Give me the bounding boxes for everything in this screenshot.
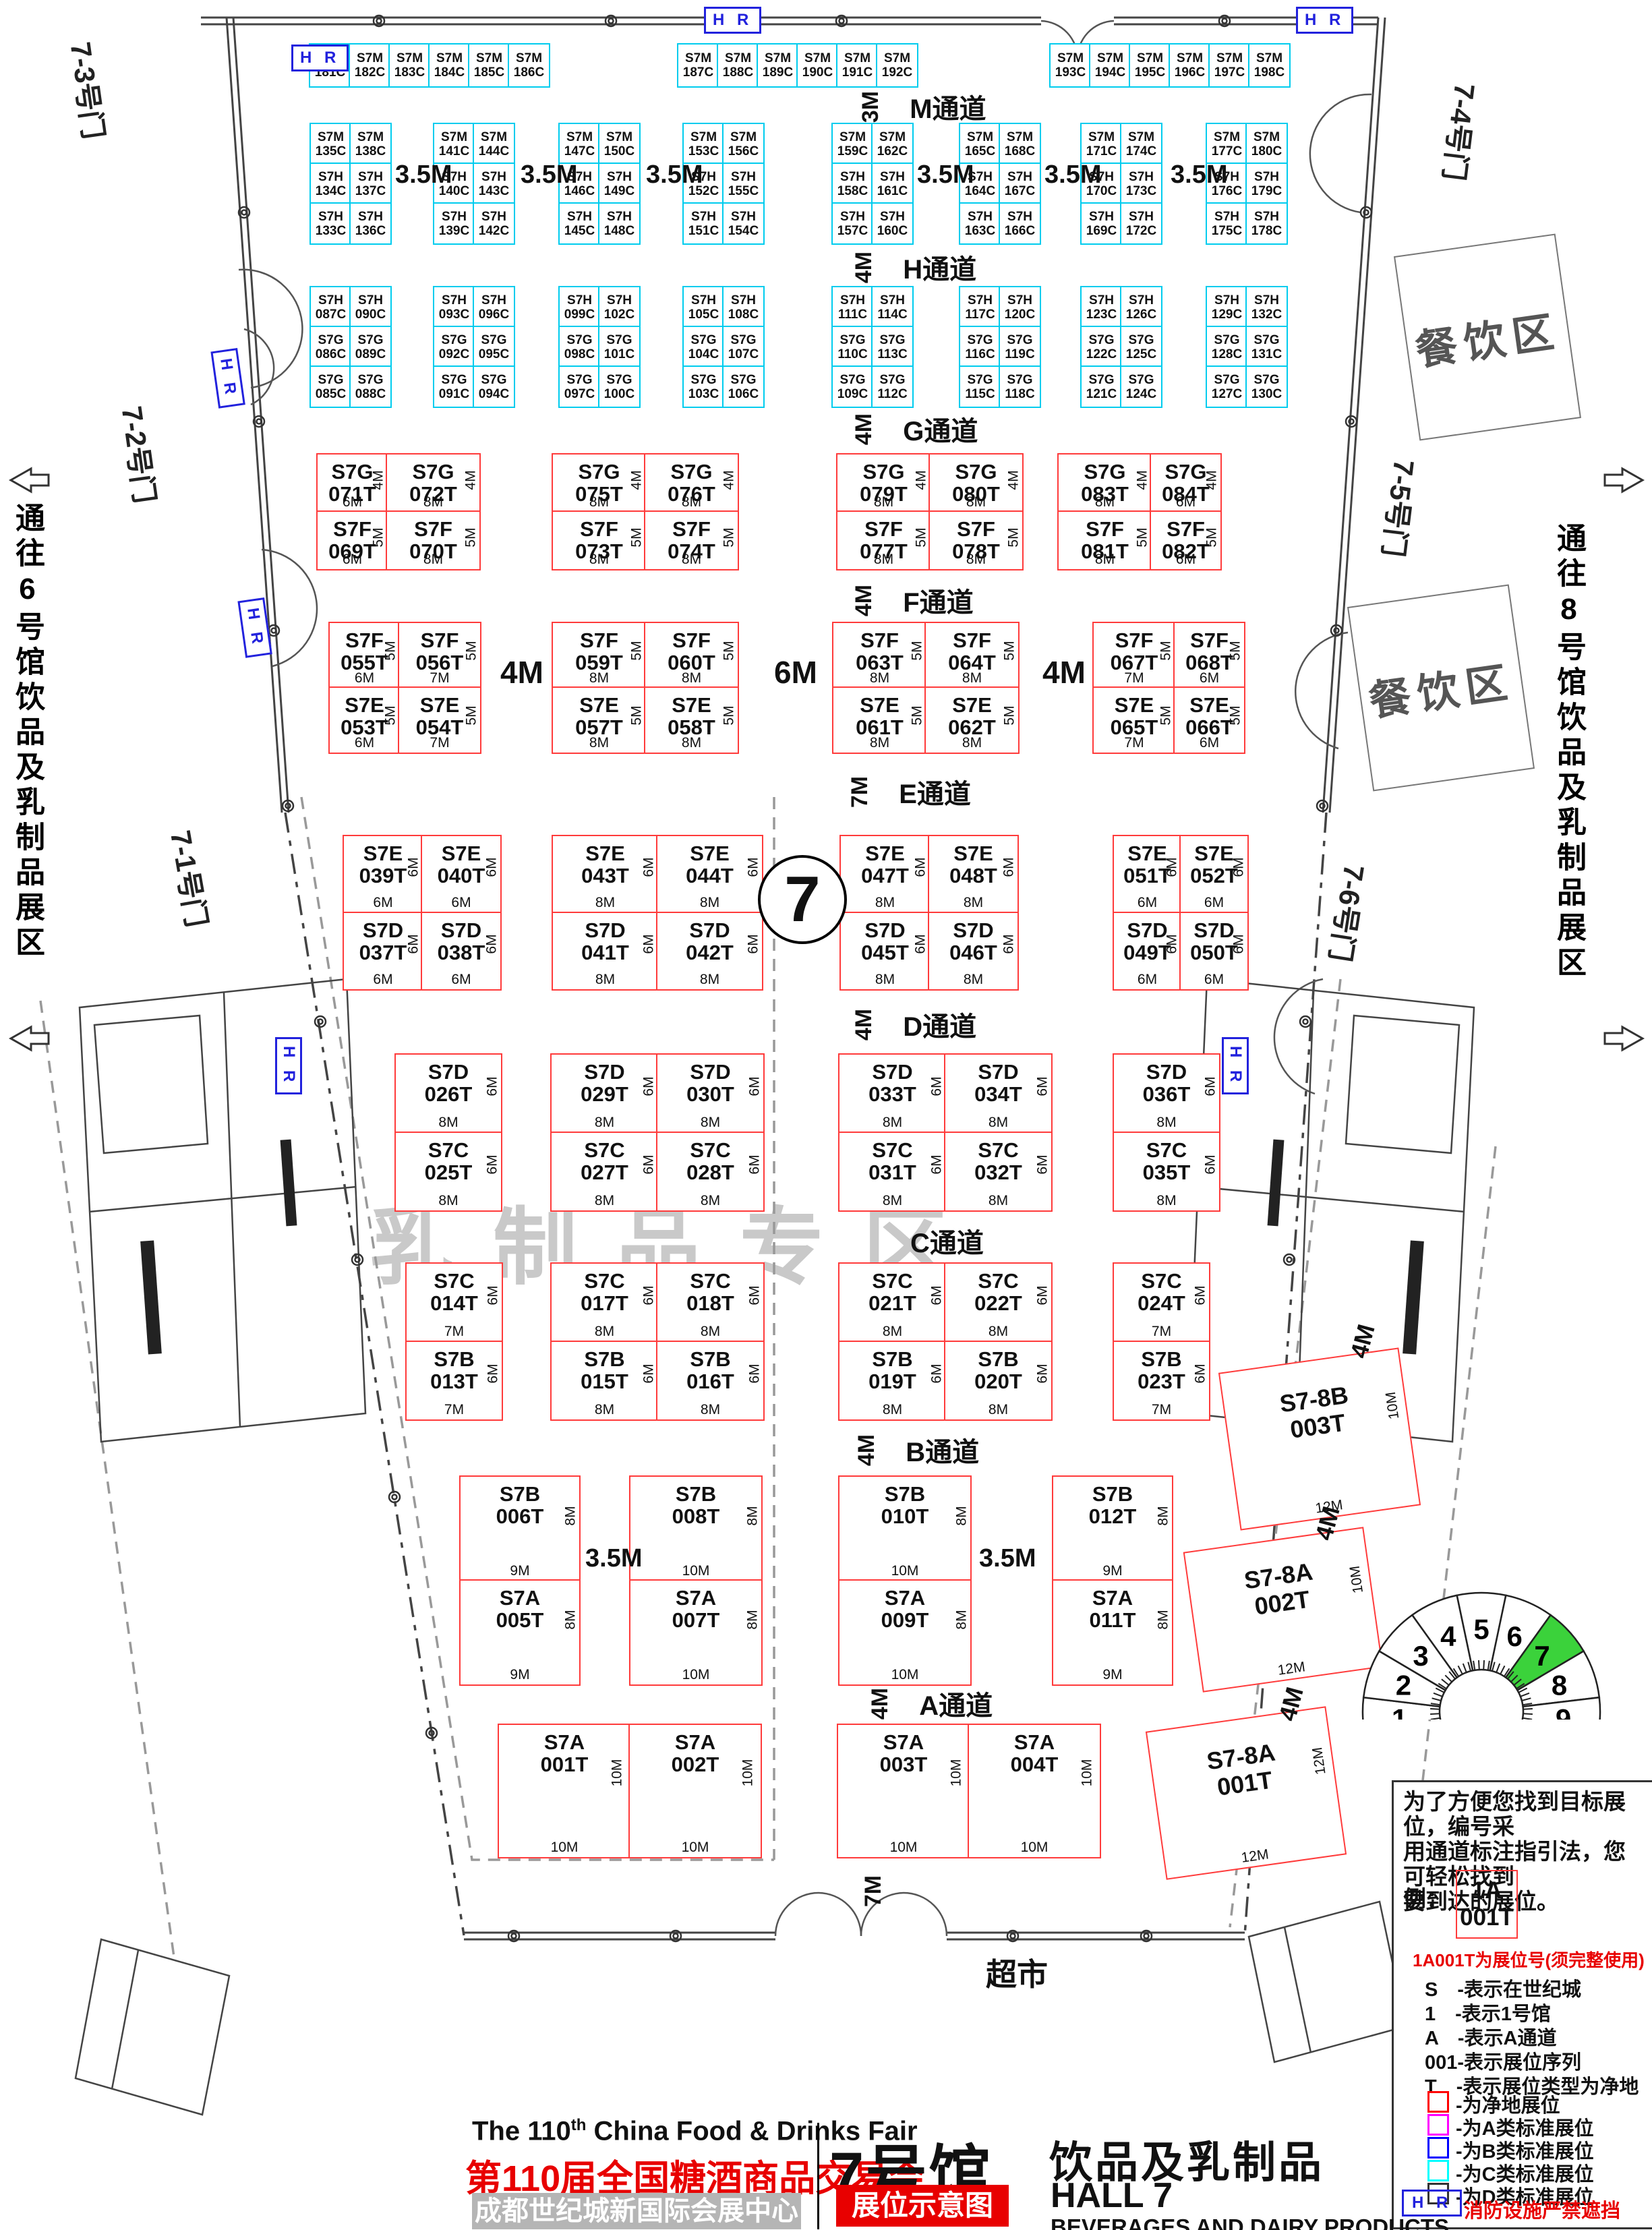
legend-type-swatch bbox=[1427, 2137, 1449, 2159]
booth: S7M153C bbox=[682, 123, 725, 165]
aisle-label: 4MH通道 bbox=[848, 251, 976, 283]
booth: S7M168C bbox=[999, 123, 1041, 165]
booth: S7H167C bbox=[999, 163, 1041, 205]
supermarket-label: 超市 bbox=[986, 1950, 1048, 1995]
booth: S7C024T 6M7M bbox=[1113, 1262, 1210, 1343]
legend-fire-note: 消防设施严禁遮挡 bbox=[1464, 2195, 1620, 2223]
hall-products-en: BEVERAGES AND DAIRY PRODUCTS bbox=[1051, 2214, 1449, 2230]
booth: S7H151C bbox=[682, 202, 725, 245]
booth: S7H163C bbox=[959, 202, 1001, 245]
booth: S7G121C bbox=[1080, 365, 1123, 408]
booth: S7H099C bbox=[558, 286, 601, 328]
booth: S7M192C bbox=[876, 43, 918, 88]
booth: S7M189C bbox=[757, 43, 799, 88]
fire-hydrant-box: H R bbox=[275, 1037, 302, 1094]
booth: S7D033T 6M8M bbox=[838, 1053, 947, 1134]
booth: S7C031T 6M8M bbox=[838, 1132, 947, 1212]
booth: S7H160C bbox=[871, 202, 914, 245]
booth: S7E061T 5M8M bbox=[832, 686, 927, 754]
booth: S7M190C bbox=[796, 43, 839, 88]
booth: S7F056T 5M7M bbox=[398, 622, 481, 689]
aisle-label: 4MD通道 bbox=[848, 1008, 976, 1040]
booth: S7G127C bbox=[1206, 365, 1248, 408]
booth: S7G101C bbox=[598, 326, 641, 368]
booth: S7E065T 5M7M bbox=[1092, 686, 1176, 754]
booth: S7M156C bbox=[722, 123, 765, 165]
booth: S7E051T 6M6M bbox=[1113, 835, 1182, 914]
booth: S7E043T 6M8M bbox=[552, 835, 659, 914]
booth: S7D026T 6M8M bbox=[394, 1053, 502, 1134]
booth: S7H173C bbox=[1120, 163, 1162, 205]
title-divider bbox=[817, 2123, 819, 2229]
booth: S7H142C bbox=[473, 202, 515, 245]
booth: S7A001T 10M10M bbox=[498, 1724, 631, 1858]
gap-dim-label: 3.5M bbox=[1171, 160, 1227, 189]
booth: S7G091C bbox=[433, 365, 475, 408]
booth: S7M138C bbox=[349, 123, 392, 165]
fan-hall-number: 1 bbox=[1392, 1703, 1407, 1720]
booth: S7E047T 6M8M bbox=[839, 835, 931, 914]
booth: S7D042T 6M8M bbox=[656, 912, 763, 991]
booth: S7G095C bbox=[473, 326, 515, 368]
booth: S7G122C bbox=[1080, 326, 1123, 368]
booth: S7H139C bbox=[433, 202, 475, 245]
booth: S7G088C bbox=[349, 365, 392, 408]
venue-bar: 成都世纪城新国际会展中心 bbox=[472, 2193, 801, 2229]
booth: S7G071T 4M6M bbox=[316, 453, 388, 513]
booth: S7M198C bbox=[1248, 43, 1291, 88]
booth: S7G076T 4M8M bbox=[644, 453, 739, 513]
booth: S7G112C bbox=[871, 365, 914, 408]
booth: S7H102C bbox=[598, 286, 641, 328]
aisle-label: 3MM通道 bbox=[855, 90, 986, 123]
booth: S7E039T 6M6M bbox=[343, 835, 423, 914]
booth: S7C032T 6M8M bbox=[944, 1132, 1053, 1212]
booth: S7H129C bbox=[1206, 286, 1248, 328]
booth: S7G086C bbox=[309, 326, 352, 368]
booth: S7M141C bbox=[433, 123, 475, 165]
corridor-text-right: 通往8号馆饮品及乳制品展区 bbox=[1547, 523, 1590, 982]
fan-hall-number: 3 bbox=[1413, 1640, 1428, 1672]
fan-hall-number: 6 bbox=[1507, 1620, 1523, 1652]
booth: S7H149C bbox=[598, 163, 641, 205]
map-type-badge: 展位示意图 bbox=[836, 2185, 1009, 2227]
booth: S7E048T 6M8M bbox=[928, 835, 1019, 914]
booth: S7D049T 6M6M bbox=[1113, 912, 1182, 991]
booth: S7M184C bbox=[428, 43, 471, 88]
gap-dim-label: 3.5M bbox=[395, 160, 452, 189]
booth: S7C028T 6M8M bbox=[656, 1132, 765, 1212]
booth: S7M186C bbox=[508, 43, 550, 88]
booth: S7E053T 5M6M bbox=[328, 686, 401, 754]
booth: S7E057T 5M8M bbox=[552, 686, 647, 754]
booth: S7D030T 6M8M bbox=[656, 1053, 765, 1134]
gap-dim-label: 6M bbox=[774, 654, 817, 691]
booth: S7G106C bbox=[722, 365, 765, 408]
dining-area: 餐饮区 bbox=[1347, 585, 1535, 792]
legend-example-booth: 1A 001T bbox=[1456, 1870, 1518, 1939]
booth: S7G089C bbox=[349, 326, 392, 368]
booth: S7G110C bbox=[831, 326, 874, 368]
fire-hydrant-box: H R bbox=[291, 45, 349, 71]
booth: S7H123C bbox=[1080, 286, 1123, 328]
aisle-label: 4MB通道 bbox=[851, 1434, 979, 1466]
booth: S7M182C bbox=[349, 43, 391, 88]
booth: S7D050T 6M6M bbox=[1179, 912, 1249, 991]
legend-type-swatch bbox=[1427, 2091, 1449, 2113]
booth: S7D045T 6M8M bbox=[839, 912, 931, 991]
booth: S7E058T 5M8M bbox=[644, 686, 739, 754]
booth: S7E062T 5M8M bbox=[924, 686, 1020, 754]
booth: S7A007T 8M10M bbox=[629, 1579, 763, 1686]
booth: S7C022T 6M8M bbox=[944, 1262, 1053, 1343]
booth: S7B016T 6M8M bbox=[656, 1341, 765, 1421]
booth: S7A002T 10M10M bbox=[628, 1724, 762, 1858]
booth: S7D038T 6M6M bbox=[421, 912, 502, 991]
gap-dim-label: 3.5M bbox=[1044, 160, 1101, 189]
booth: S7M165C bbox=[959, 123, 1001, 165]
aisle-label: C通道 bbox=[910, 1225, 984, 1257]
booth: S7G119C bbox=[999, 326, 1041, 368]
gap-dim-label: 3.5M bbox=[521, 160, 577, 189]
booth: S7A003T 10M10M bbox=[837, 1724, 970, 1858]
gap-dim-label: 3.5M bbox=[979, 1544, 1036, 1573]
fan-hall-number: 7 bbox=[1534, 1640, 1550, 1672]
booth: S7E054T 5M7M bbox=[398, 686, 481, 754]
fire-hydrant-box: H R bbox=[704, 7, 761, 34]
booth: S7D041T 6M8M bbox=[552, 912, 659, 991]
booth: S7G107C bbox=[722, 326, 765, 368]
booth: S7H161C bbox=[871, 163, 914, 205]
booth: S7H158C bbox=[831, 163, 874, 205]
booth: S7F063T 5M8M bbox=[832, 622, 927, 689]
booth: S7H136C bbox=[349, 202, 392, 245]
booth: S7M196C bbox=[1169, 43, 1211, 88]
booth: S7C018T 6M8M bbox=[656, 1262, 765, 1343]
booth: S7D046T 6M8M bbox=[928, 912, 1019, 991]
booth: S7F059T 5M8M bbox=[552, 622, 647, 689]
booth: S7H154C bbox=[722, 202, 765, 245]
booth: S7G084T 4M6M bbox=[1150, 453, 1222, 513]
booth: S7G109C bbox=[831, 365, 874, 408]
booth: S7M171C bbox=[1080, 123, 1123, 165]
booth: S7G118C bbox=[999, 365, 1041, 408]
booth: S7G131C bbox=[1245, 326, 1288, 368]
corridor-text-left: 通往6号馆饮品及乳制品展区 bbox=[5, 502, 49, 962]
booth: S7M193C bbox=[1049, 43, 1092, 88]
booth: S7M147C bbox=[558, 123, 601, 165]
booth: S7H175C bbox=[1206, 202, 1248, 245]
gap-dim-label: 3.5M bbox=[917, 160, 974, 189]
booth: S7B006T 8M9M bbox=[459, 1475, 581, 1582]
booth: S7H111C bbox=[831, 286, 874, 328]
booth: S7C027T 6M8M bbox=[550, 1132, 659, 1212]
booth: S7G092C bbox=[433, 326, 475, 368]
booth: S7M177C bbox=[1206, 123, 1248, 165]
booth: S7C035T 6M8M bbox=[1113, 1132, 1220, 1212]
booth: S7G104C bbox=[682, 326, 725, 368]
booth: S7F069T 5M6M bbox=[316, 510, 388, 570]
booth: S7G113C bbox=[871, 326, 914, 368]
booth: S7H133C bbox=[309, 202, 352, 245]
booth: S7H155C bbox=[722, 163, 765, 205]
booth: S7H134C bbox=[309, 163, 352, 205]
booth: S7F078T 5M8M bbox=[928, 510, 1024, 570]
booth: S7E040T 6M6M bbox=[421, 835, 502, 914]
legend-panel: 为了方便您找到目标展位，编号采 用通道标注指引法，您可轻松找到 要到达的展位。 … bbox=[1392, 1780, 1652, 2229]
booth: S7F077T 5M8M bbox=[836, 510, 931, 570]
booth: S7H143C bbox=[473, 163, 515, 205]
booth: S7H120C bbox=[999, 286, 1041, 328]
booth: S7B008T 8M10M bbox=[629, 1475, 763, 1582]
legend-hr-box: H R bbox=[1402, 2190, 1462, 2217]
booth: S7G124C bbox=[1120, 365, 1162, 408]
booth: S7A011T 8M9M bbox=[1052, 1579, 1173, 1686]
booth: S7F068T 5M6M bbox=[1173, 622, 1245, 689]
booth: S7B015T 6M8M bbox=[550, 1341, 659, 1421]
gap-dim-label: 4M bbox=[1042, 654, 1086, 691]
booth: S7H166C bbox=[999, 202, 1041, 245]
booth: S7F074T 5M8M bbox=[644, 510, 739, 570]
booth: S7C021T 6M8M bbox=[838, 1262, 947, 1343]
booth: S7B012T 8M9M bbox=[1052, 1475, 1173, 1582]
booth: S7G128C bbox=[1206, 326, 1248, 368]
fan-hall-number: 8 bbox=[1552, 1670, 1567, 1701]
aisle-label: 7ME通道 bbox=[844, 775, 971, 808]
booth: S7F067T 5M7M bbox=[1092, 622, 1176, 689]
booth: S7D036T 6M8M bbox=[1113, 1053, 1220, 1134]
booth: S7G115C bbox=[959, 365, 1001, 408]
aisle-label: 4MA通道 bbox=[864, 1687, 993, 1720]
booth: S7H114C bbox=[871, 286, 914, 328]
booth: S7H132C bbox=[1245, 286, 1288, 328]
booth: S7G080T 4M8M bbox=[928, 453, 1024, 513]
fire-hydrant-box: H R bbox=[1222, 1037, 1249, 1094]
booth: S7G098C bbox=[558, 326, 601, 368]
booth: S7F055T 5M6M bbox=[328, 622, 401, 689]
booth: S7G103C bbox=[682, 365, 725, 408]
booth: S7D029T 6M8M bbox=[550, 1053, 659, 1134]
booth: S7G085C bbox=[309, 365, 352, 408]
booth: S7G079T 4M8M bbox=[836, 453, 931, 513]
booth: S7F073T 5M8M bbox=[552, 510, 647, 570]
booth: S7F081T 5M8M bbox=[1057, 510, 1152, 570]
booth: S7F082T 5M6M bbox=[1150, 510, 1222, 570]
booth: S7M183C bbox=[388, 43, 431, 88]
booth: S7M188C bbox=[717, 43, 759, 88]
booth: S7D037T 6M6M bbox=[343, 912, 423, 991]
booth: S7G083T 4M8M bbox=[1057, 453, 1152, 513]
booth: S7H137C bbox=[349, 163, 392, 205]
hall-number: 7 bbox=[784, 862, 820, 937]
booth: S7B020T 6M8M bbox=[944, 1341, 1053, 1421]
booth: S7G125C bbox=[1120, 326, 1162, 368]
booth: S7M195C bbox=[1129, 43, 1171, 88]
booth: S7H090C bbox=[349, 286, 392, 328]
booth: S7G100C bbox=[598, 365, 641, 408]
booth: S7M174C bbox=[1120, 123, 1162, 165]
booth: S7H145C bbox=[558, 202, 601, 245]
dining-area: 餐饮区 bbox=[1394, 234, 1581, 441]
booth: S7F064T 5M8M bbox=[924, 622, 1020, 689]
gap-dim-label: 3.5M bbox=[585, 1544, 642, 1573]
booth: S7M135C bbox=[309, 123, 352, 165]
booth: S7G130C bbox=[1245, 365, 1288, 408]
legend-example-label: 例： bbox=[1403, 1881, 1449, 1914]
gap-dim-label: 4M bbox=[500, 654, 543, 691]
booth: S7E066T 5M6M bbox=[1173, 686, 1245, 754]
booth: S7H169C bbox=[1080, 202, 1123, 245]
booth: S7B010T 8M10M bbox=[838, 1475, 972, 1582]
booth: S7E052T 6M6M bbox=[1179, 835, 1249, 914]
booth: S7M194C bbox=[1089, 43, 1131, 88]
aisle-label: 4MG通道 bbox=[848, 413, 978, 445]
fan-hall-number: 4 bbox=[1440, 1620, 1456, 1652]
hall-selector-fan: 123456789 bbox=[1350, 1544, 1613, 1720]
booth: S7B013T 6M7M bbox=[405, 1341, 503, 1421]
legend-type-swatch bbox=[1427, 2160, 1449, 2181]
booth: S7F070T 5M8M bbox=[386, 510, 481, 570]
aisle-label: 4MF通道 bbox=[848, 584, 974, 616]
booth: S7M150C bbox=[598, 123, 641, 165]
booth: S7H148C bbox=[598, 202, 641, 245]
aisle-label: 7M bbox=[858, 1875, 889, 1907]
fan-hall-number: 2 bbox=[1396, 1670, 1411, 1701]
booth: S7B023T 6M7M bbox=[1113, 1341, 1210, 1421]
booth: S7E044T 6M8M bbox=[656, 835, 763, 914]
booth: S7G072T 4M8M bbox=[386, 453, 481, 513]
hall-name-en: HALL 7 bbox=[1051, 2175, 1173, 2216]
booth: S7H117C bbox=[959, 286, 1001, 328]
booth: S7-8A001T 12M12M bbox=[1146, 1706, 1347, 1879]
booth: S7C014T 6M7M bbox=[405, 1262, 503, 1343]
booth: S7M159C bbox=[831, 123, 874, 165]
fire-hydrant-box: H R bbox=[1296, 7, 1353, 34]
booth: S7H126C bbox=[1120, 286, 1162, 328]
hall7-floor-plan: 乳制品专区 7 通往6号馆饮品及乳制品展区 通往8号馆饮品及乳制品展区 超市 1… bbox=[0, 0, 1652, 2230]
booth: S7M185C bbox=[468, 43, 510, 88]
booth: S7M197C bbox=[1208, 43, 1251, 88]
booth: S7C017T 6M8M bbox=[550, 1262, 659, 1343]
legend-type-swatch bbox=[1427, 2114, 1449, 2136]
booth: S7M180C bbox=[1245, 123, 1288, 165]
booth: S7G075T 4M8M bbox=[552, 453, 647, 513]
booth: S7B019T 6M8M bbox=[838, 1341, 947, 1421]
fan-hall-number: 5 bbox=[1473, 1614, 1489, 1645]
booth: S7H096C bbox=[473, 286, 515, 328]
booth: S7G116C bbox=[959, 326, 1001, 368]
booth: S7D034T 6M8M bbox=[944, 1053, 1053, 1134]
booth: S7G094C bbox=[473, 365, 515, 408]
booth: S7C025T 6M8M bbox=[394, 1132, 502, 1212]
booth: S7H105C bbox=[682, 286, 725, 328]
booth: S7A004T 10M10M bbox=[968, 1724, 1101, 1858]
booth: S7M144C bbox=[473, 123, 515, 165]
booth: S7H087C bbox=[309, 286, 352, 328]
booth: S7M187C bbox=[677, 43, 719, 88]
booth: S7H172C bbox=[1120, 202, 1162, 245]
booth: S7H157C bbox=[831, 202, 874, 245]
booth: S7M191C bbox=[836, 43, 879, 88]
booth: S7M162C bbox=[871, 123, 914, 165]
booth: S7A009T 8M10M bbox=[838, 1579, 972, 1686]
booth: S7A005T 8M9M bbox=[459, 1579, 581, 1686]
booth: S7F060T 5M8M bbox=[644, 622, 739, 689]
booth: S7G097C bbox=[558, 365, 601, 408]
legend-code-note: 1A001T为展位号(须完整使用) bbox=[1413, 1947, 1645, 1972]
hall-number-circle: 7 bbox=[758, 855, 847, 944]
booth: S7H179C bbox=[1245, 163, 1288, 205]
fan-hall-number: 9 bbox=[1556, 1703, 1571, 1720]
booth: S7H178C bbox=[1245, 202, 1288, 245]
booth: S7H108C bbox=[722, 286, 765, 328]
gap-dim-label: 3.5M bbox=[646, 160, 703, 189]
booth: S7H093C bbox=[433, 286, 475, 328]
